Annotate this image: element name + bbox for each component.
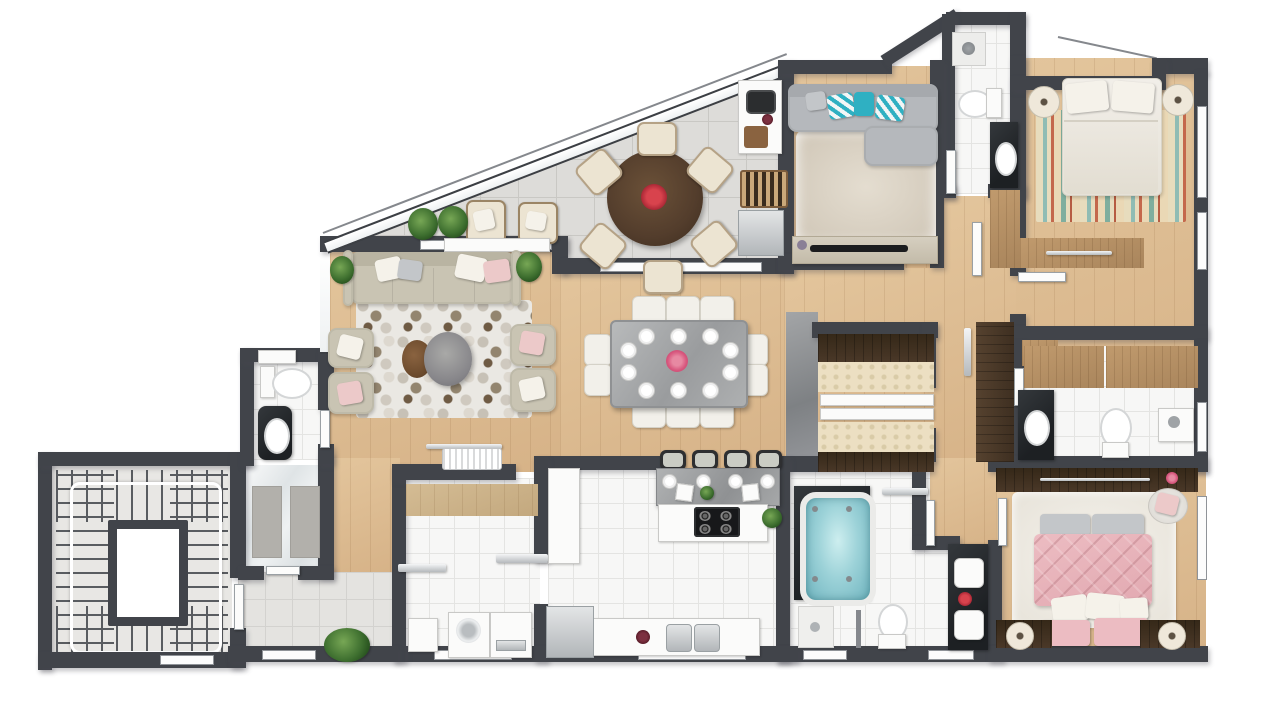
bbq-sink xyxy=(746,90,776,114)
closet-rail xyxy=(820,394,934,406)
tall-cabinet xyxy=(548,468,580,564)
pillow xyxy=(397,258,424,281)
towel-rail xyxy=(964,328,971,376)
double-sink xyxy=(694,624,720,652)
dresser-handle xyxy=(1040,478,1150,481)
terrace-chair xyxy=(643,260,683,294)
service-corridor-floor xyxy=(238,572,398,654)
double-sink xyxy=(666,624,692,652)
door-corridor xyxy=(972,222,982,276)
hall-left-floor xyxy=(330,458,400,574)
closet-rail xyxy=(820,408,934,420)
wall-cabinet xyxy=(1024,346,1104,388)
nightstand-lamp xyxy=(1028,86,1060,118)
tv-sofa-chaise xyxy=(864,126,938,166)
washer-door xyxy=(456,618,481,643)
mini-plant xyxy=(700,486,714,500)
door-kitchen-open xyxy=(496,554,548,563)
towel-rail xyxy=(882,488,928,495)
bbq-cabinet xyxy=(738,210,784,256)
door-marble-room xyxy=(266,566,300,575)
towel-shelf xyxy=(258,350,296,364)
bar-stool xyxy=(756,450,782,470)
jacuzzi-jet xyxy=(846,576,852,582)
flower-vase xyxy=(958,592,972,606)
charcoal-grill xyxy=(740,170,788,208)
teal-pillow xyxy=(854,92,874,116)
door-stairwell xyxy=(234,584,244,630)
elevator-shaft xyxy=(108,520,188,626)
cutting-board xyxy=(744,126,768,148)
door-bedroom1 xyxy=(1018,272,1066,282)
napkin xyxy=(675,483,694,502)
floor-mat xyxy=(252,486,282,558)
window xyxy=(1197,106,1207,198)
wall xyxy=(392,464,406,662)
wall xyxy=(230,452,246,578)
place-setting xyxy=(760,474,775,489)
wall xyxy=(240,348,254,466)
bush xyxy=(408,208,438,240)
wardrobe xyxy=(990,190,1020,268)
toilet-bowl xyxy=(272,368,312,399)
place-setting xyxy=(670,382,687,399)
place-setting xyxy=(638,382,655,399)
window xyxy=(1197,402,1207,452)
tv xyxy=(810,245,908,252)
window xyxy=(262,650,316,660)
bowl xyxy=(762,114,773,125)
closet-wardrobe xyxy=(818,452,934,472)
door-master-bathroom xyxy=(926,500,935,546)
flower-centerpiece xyxy=(641,184,667,210)
nightstand-lamp xyxy=(1158,622,1186,650)
laundry-counter xyxy=(406,484,538,516)
jacuzzi-jet xyxy=(812,576,818,582)
terrace-chair xyxy=(637,122,677,156)
ac-unit xyxy=(442,448,502,470)
pillow xyxy=(483,258,512,283)
foot-bench-cushion xyxy=(1092,514,1144,536)
jacuzzi-jet xyxy=(846,506,852,512)
closet-fabric-panel xyxy=(818,422,934,452)
dresser-handle xyxy=(1046,251,1112,255)
door-laundry-open xyxy=(398,564,446,572)
place-setting xyxy=(620,342,637,359)
pillow xyxy=(518,330,545,356)
wall xyxy=(38,452,52,670)
plant xyxy=(762,508,782,528)
shower-drain xyxy=(810,622,820,632)
duvet-fold xyxy=(1064,120,1158,194)
window xyxy=(803,650,847,660)
dining-chair xyxy=(584,364,612,396)
bush xyxy=(438,206,468,238)
toilet-tank xyxy=(1102,442,1129,458)
nightstand-lamp xyxy=(1006,622,1034,650)
planter-box xyxy=(444,238,550,252)
vanity-sink xyxy=(995,142,1017,176)
pillow xyxy=(1111,80,1155,114)
wall xyxy=(38,452,250,466)
vanity-sink xyxy=(954,558,984,588)
place-setting xyxy=(722,342,739,359)
flower-centerpiece xyxy=(666,350,688,372)
pillow xyxy=(1065,80,1110,114)
toilet-tank xyxy=(986,88,1002,118)
floor-plan xyxy=(0,0,1280,725)
wall xyxy=(298,566,334,580)
dryer-panel xyxy=(496,640,526,651)
place-setting xyxy=(702,382,719,399)
dining-chair xyxy=(584,334,612,366)
wall xyxy=(238,566,264,580)
plant xyxy=(516,252,542,282)
bar-stool xyxy=(660,450,686,470)
outdoor-cushion xyxy=(525,210,548,231)
vanity-sink xyxy=(1024,410,1050,446)
foot-bench-cushion xyxy=(1040,514,1090,536)
place-setting xyxy=(662,474,677,489)
wall xyxy=(1010,326,1208,340)
facade-outer-line xyxy=(1058,36,1157,59)
wall xyxy=(318,452,334,578)
place-setting xyxy=(722,364,739,381)
pillow xyxy=(805,91,827,112)
decor-vase xyxy=(797,240,807,250)
chevron-pillow xyxy=(874,94,905,122)
flower-vase xyxy=(1166,472,1178,484)
refrigerator xyxy=(546,606,594,658)
tall-wardrobe xyxy=(976,322,1014,462)
burner xyxy=(720,524,732,534)
wall-cabinet xyxy=(1106,346,1198,388)
shower-head xyxy=(962,42,975,55)
napkin xyxy=(741,483,760,502)
dryer xyxy=(490,612,532,658)
window xyxy=(160,655,214,665)
outdoor-cushion xyxy=(472,208,496,232)
plant xyxy=(330,256,354,284)
chevron-pillow xyxy=(826,92,856,120)
vanity-sink xyxy=(264,418,290,454)
place-setting xyxy=(620,364,637,381)
door-hall-bathroom xyxy=(946,150,956,194)
floor-mat xyxy=(290,486,320,558)
window xyxy=(1197,496,1207,580)
window xyxy=(928,650,974,660)
toilet-tank xyxy=(878,634,906,649)
bar-stool xyxy=(724,450,750,470)
window xyxy=(1197,212,1207,270)
nightstand-lamp xyxy=(1162,84,1194,116)
glass-divider xyxy=(856,610,861,648)
shower-head xyxy=(1168,416,1180,428)
closet-fabric-panel xyxy=(818,362,934,392)
burner xyxy=(699,511,711,521)
vanity-sink xyxy=(954,610,984,640)
coffee-table-marble xyxy=(424,332,472,386)
water-heater xyxy=(408,618,438,652)
jacuzzi-jet xyxy=(812,506,818,512)
wall xyxy=(778,60,892,74)
bar-stool xyxy=(692,450,718,470)
bowl xyxy=(636,630,650,644)
closet-wardrobe xyxy=(818,334,934,362)
door-powder-room xyxy=(320,410,330,448)
place-setting xyxy=(638,328,655,345)
place-setting xyxy=(670,328,687,345)
place-setting xyxy=(702,328,719,345)
planter-bush xyxy=(324,628,370,662)
burner xyxy=(699,524,711,534)
pillow xyxy=(336,380,363,406)
door-master-bedroom xyxy=(998,498,1007,546)
burner xyxy=(720,511,732,521)
